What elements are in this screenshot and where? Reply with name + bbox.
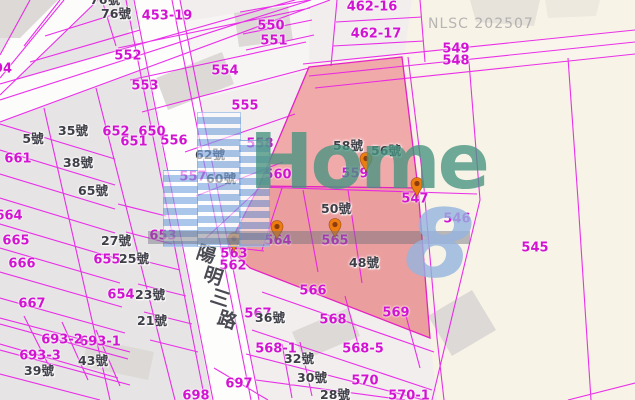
parcel-number-label: 549 xyxy=(442,43,469,56)
address-label: 23號 xyxy=(135,289,165,302)
address-label: 25號 xyxy=(119,253,149,266)
parcel-number-label: 667 xyxy=(18,298,45,311)
parcel-number-label: 653 xyxy=(149,230,176,243)
parcel-number-label: 661 xyxy=(4,153,31,166)
address-label: 27號 xyxy=(101,235,131,248)
parcel-number-label: 569 xyxy=(382,307,409,320)
parcel-number-label: 462-16 xyxy=(347,1,398,14)
address-label: 60號 xyxy=(206,173,236,186)
address-label: 5號 xyxy=(22,133,43,146)
address-label: 32號 xyxy=(284,353,314,366)
address-label: 38號 xyxy=(63,157,93,170)
parcel-number-label: 555 xyxy=(231,100,258,113)
address-label: 21號 xyxy=(137,315,167,328)
location-pin-icon[interactable] xyxy=(359,151,373,173)
address-label: 36號 xyxy=(255,312,285,325)
parcel-number-label: 652 xyxy=(102,126,129,139)
parcel-number-label: 546 xyxy=(443,213,470,226)
cadastral-map-canvas[interactable]: 453-195505515525535545555565575585595605… xyxy=(0,0,635,400)
address-label: 39號 xyxy=(24,365,54,378)
parcel-number-label: 665 xyxy=(2,235,29,248)
parcel-number-label: 553 xyxy=(131,80,158,93)
parcel-number-label: 566 xyxy=(299,285,326,298)
parcel-number-label: 568 xyxy=(319,314,346,327)
parcel-number-label: 453-19 xyxy=(142,10,193,23)
parcel-number-label: 558 xyxy=(246,138,273,151)
parcel-number-label: 94 xyxy=(0,63,12,76)
parcel-number-label: 693-2 xyxy=(41,334,83,347)
address-label: 56號 xyxy=(371,145,401,158)
parcel-number-label: 693-1 xyxy=(79,336,121,349)
location-pin-icon[interactable] xyxy=(270,219,284,241)
parcel-number-label: 545 xyxy=(521,242,548,255)
parcel-number-label: 655 xyxy=(93,254,120,267)
parcel-number-label: 560 xyxy=(264,169,291,182)
address-label: 65號 xyxy=(78,185,108,198)
parcel-number-label: 568-5 xyxy=(342,343,384,356)
parcel-number-label: 570-1 xyxy=(388,390,430,400)
parcel-number-label: 697 xyxy=(225,378,252,391)
parcel-number-label: 552 xyxy=(114,50,141,63)
parcel-number-label: 698 xyxy=(182,390,209,400)
parcel-number-label: 554 xyxy=(211,65,238,78)
parcel-number-label: 570 xyxy=(351,375,378,388)
address-label: 30號 xyxy=(297,372,327,385)
address-label: 28號 xyxy=(320,389,350,400)
parcel-number-label: 666 xyxy=(8,258,35,271)
address-label: 62號 xyxy=(195,149,225,162)
parcel-number-label: 557 xyxy=(179,171,206,184)
location-pin-icon[interactable] xyxy=(227,231,241,253)
parcel-number-label: 462-17 xyxy=(351,28,402,41)
location-pin-icon[interactable] xyxy=(410,176,424,198)
parcel-number-label: 550 xyxy=(257,20,284,33)
address-label: 76號 xyxy=(101,8,131,21)
parcel-number-label: 693-3 xyxy=(19,350,61,363)
address-label: 43號 xyxy=(78,355,108,368)
address-label: 48號 xyxy=(349,257,379,270)
location-pin-icon[interactable] xyxy=(328,217,342,239)
parcel-number-label: 654 xyxy=(107,289,134,302)
parcel-number-label: 664 xyxy=(0,210,23,223)
address-label: 50號 xyxy=(321,203,351,216)
address-label: 35號 xyxy=(58,125,88,138)
parcel-number-label: 551 xyxy=(260,35,287,48)
